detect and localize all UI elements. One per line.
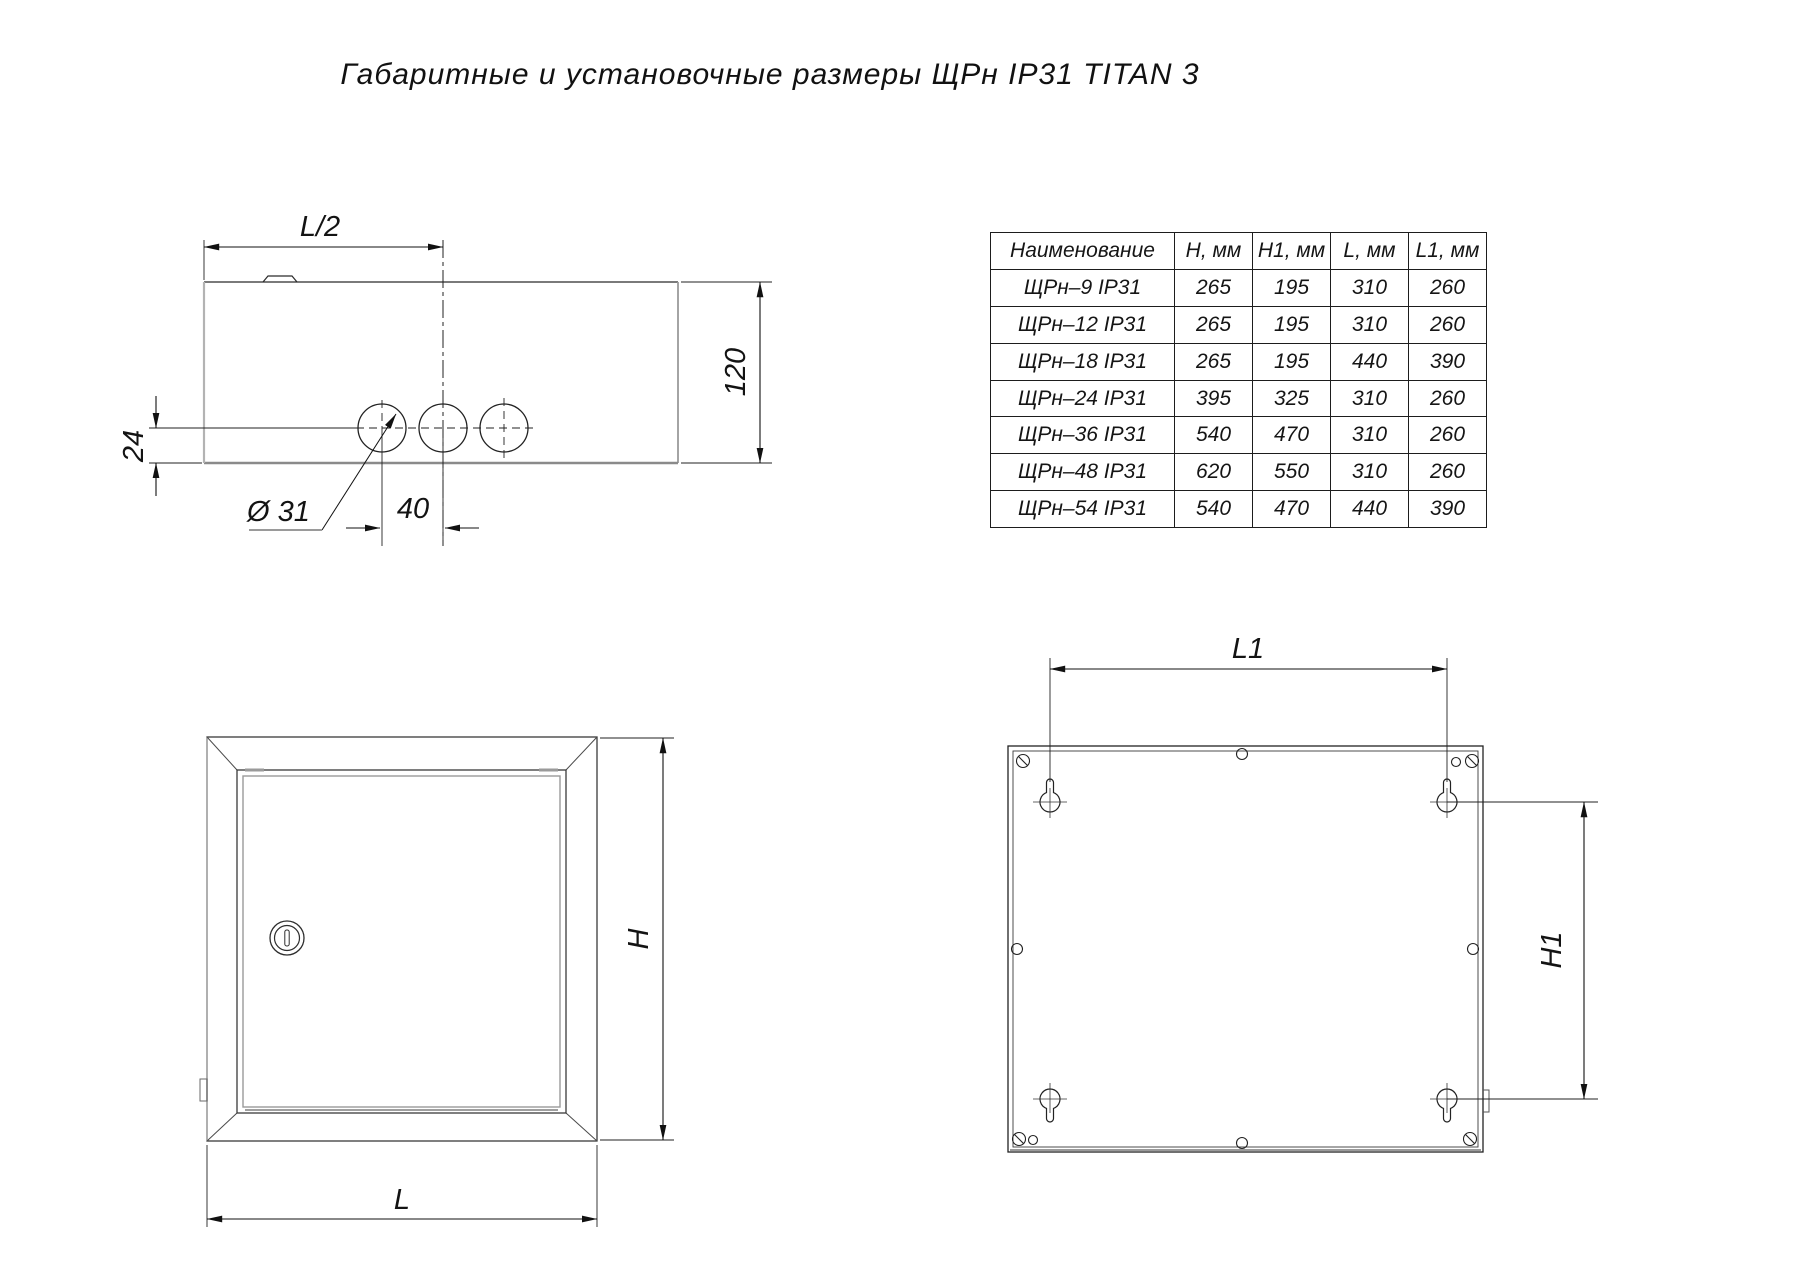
dim-label-mount-height: H1 [1536, 931, 1568, 968]
back-view: L1 H1 [1008, 633, 1598, 1152]
cell-h1: 195 [1253, 306, 1331, 343]
dim-label-hole-spacing: 40 [397, 493, 429, 525]
column-header: H1, мм [1253, 233, 1331, 270]
column-header: H, мм [1175, 233, 1253, 270]
cell-h1: 550 [1253, 454, 1331, 491]
dim-label-half-width: L/2 [300, 211, 340, 243]
dim-mount-height: H1 [1447, 802, 1598, 1099]
dim-half-width: L/2 [204, 211, 443, 280]
screw-slot [1465, 1134, 1474, 1143]
dim-label-hole-offset: 24 [118, 430, 150, 463]
cell-h1: 195 [1253, 343, 1331, 380]
dim-label-mount-width: L1 [1232, 633, 1264, 665]
cell-h: 395 [1175, 380, 1253, 417]
cell-l1: 390 [1409, 491, 1487, 528]
leader-line [322, 414, 396, 530]
lock-inner-circle [275, 926, 300, 951]
dim-depth: 120 [681, 282, 772, 463]
dim-label-front-width: L [394, 1184, 410, 1216]
back-outer-edge [1008, 746, 1483, 1152]
column-header: Наименование [991, 233, 1175, 270]
dim-label-hole-diameter: Ø 31 [246, 496, 310, 528]
cell-name: ЩРн–9 IP31 [991, 269, 1175, 306]
door-inner-line [243, 776, 560, 1107]
front-view: H L [200, 737, 674, 1227]
cell-l: 310 [1331, 454, 1409, 491]
cell-name: ЩРн–48 IP31 [991, 454, 1175, 491]
cell-l1: 260 [1409, 306, 1487, 343]
cell-name: ЩРн–36 IP31 [991, 417, 1175, 454]
dimensions-table: Наименование H, мм H1, мм L, мм L1, мм Щ… [990, 232, 1487, 528]
corner-screws [1013, 755, 1479, 1146]
door-lock [270, 921, 304, 955]
cell-h: 265 [1175, 343, 1253, 380]
dim-label-depth: 120 [720, 348, 752, 396]
side-tab [1483, 1090, 1489, 1112]
cell-name: ЩРн–54 IP31 [991, 491, 1175, 528]
cell-l: 310 [1331, 306, 1409, 343]
cell-name: ЩРн–12 IP31 [991, 306, 1175, 343]
bevel-line [207, 737, 237, 770]
cell-h: 620 [1175, 454, 1253, 491]
cell-h: 265 [1175, 269, 1253, 306]
drawing-sheet: Габаритные и установочные размеры ЩРн IP… [0, 0, 1809, 1281]
small-hole [1452, 758, 1461, 767]
cell-l1: 260 [1409, 380, 1487, 417]
cell-name: ЩРн–24 IP31 [991, 380, 1175, 417]
dim-hole-diameter: Ø 31 [246, 414, 396, 530]
table-row: ЩРн–9 IP31 265 195 310 260 [991, 269, 1487, 306]
mounting-keyholes [1040, 779, 1457, 1122]
cell-l: 310 [1331, 269, 1409, 306]
top-view: L/2 120 24 40 [118, 211, 772, 546]
dim-mount-width: L1 [1050, 633, 1447, 782]
bevel-line [566, 1113, 597, 1141]
table-row: ЩРн–12 IP31 265 195 310 260 [991, 306, 1487, 343]
keyhole-centerlines [1033, 788, 1464, 1113]
table-header-row: Наименование H, мм H1, мм L, мм L1, мм [991, 233, 1487, 270]
small-hole [1237, 749, 1248, 760]
table-row: ЩРн–18 IP31 265 195 440 390 [991, 343, 1487, 380]
small-hole [1029, 1136, 1038, 1145]
cell-l1: 260 [1409, 269, 1487, 306]
cell-l: 440 [1331, 491, 1409, 528]
cell-h1: 470 [1253, 417, 1331, 454]
cell-h1: 325 [1253, 380, 1331, 417]
screw-slot [1014, 1134, 1023, 1143]
cell-l: 310 [1331, 380, 1409, 417]
door-panel [237, 770, 566, 1113]
dim-front-width: L [207, 1145, 597, 1227]
column-header: L, мм [1331, 233, 1409, 270]
cell-l1: 390 [1409, 343, 1487, 380]
cell-l1: 260 [1409, 417, 1487, 454]
screw-slot [1467, 756, 1476, 765]
small-hole [1468, 944, 1479, 955]
latch-bump [263, 276, 297, 282]
bevel-line [566, 737, 597, 770]
bevel-line [207, 1113, 237, 1141]
cell-h: 265 [1175, 306, 1253, 343]
column-header: L1, мм [1409, 233, 1487, 270]
table-row: ЩРн–24 IP31 395 325 310 260 [991, 380, 1487, 417]
cell-name: ЩРн–18 IP31 [991, 343, 1175, 380]
cell-h1: 195 [1253, 269, 1331, 306]
table-row: ЩРн–54 IP31 540 470 440 390 [991, 491, 1487, 528]
door-catch-tab [200, 1079, 207, 1101]
screw-slot [1018, 756, 1027, 765]
back-inner-edge [1013, 751, 1478, 1147]
dim-front-height: H [600, 738, 674, 1140]
dim-hole-offset: 24 [118, 396, 202, 496]
cell-h: 540 [1175, 491, 1253, 528]
cell-l1: 260 [1409, 454, 1487, 491]
cell-l: 310 [1331, 417, 1409, 454]
cell-h: 540 [1175, 417, 1253, 454]
dim-label-front-height: H [623, 928, 655, 949]
front-outer-body [207, 737, 597, 1141]
cell-l: 440 [1331, 343, 1409, 380]
table-row: ЩРн–36 IP31 540 470 310 260 [991, 417, 1487, 454]
cell-h1: 470 [1253, 491, 1331, 528]
dim-hole-spacing: 40 [346, 430, 479, 546]
technical-drawing: L/2 120 24 40 [0, 0, 1809, 1281]
lock-keyhole-slot [285, 930, 289, 946]
table-row: ЩРн–48 IP31 620 550 310 260 [991, 454, 1487, 491]
small-holes [1012, 749, 1479, 1149]
